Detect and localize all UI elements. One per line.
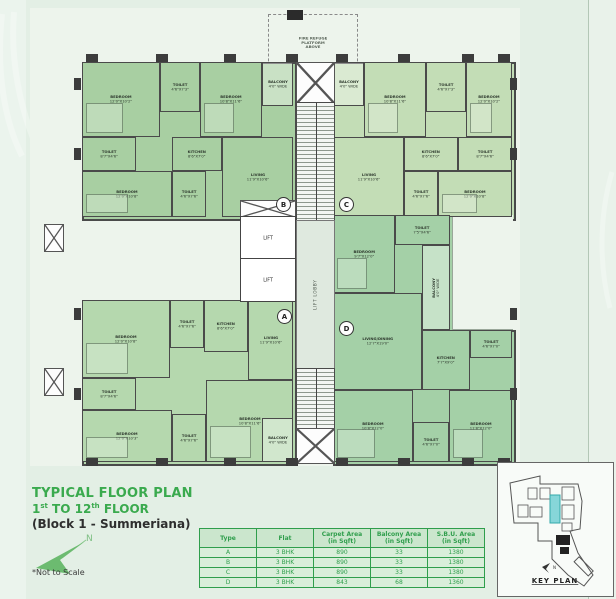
column bbox=[74, 308, 81, 320]
room-toilet: TOILET4'6"X7'3" bbox=[426, 62, 466, 112]
column bbox=[498, 54, 510, 62]
column bbox=[156, 54, 168, 62]
table-cell: A bbox=[200, 548, 257, 558]
page: FIRE REFUGE PLATFORM ABOVE BEDROOM12'0"X… bbox=[0, 0, 616, 599]
area-table-body: A3 BHK890331380B3 BHK890331380C3 BHK8903… bbox=[200, 548, 485, 588]
table-cell: 3 BHK bbox=[257, 568, 314, 578]
room-toilet: TOILET4'6"X7'6" bbox=[172, 171, 206, 217]
room-bedroom: BEDROOM10'8"X12'0" bbox=[333, 390, 413, 462]
column bbox=[510, 388, 517, 400]
key-north-arrow bbox=[542, 563, 550, 573]
table-cell: 3 BHK bbox=[257, 558, 314, 568]
plan-subtitle: 1st TO 12th FLOOR bbox=[32, 502, 193, 516]
room-toilet: TOILET7'5"X4'6" bbox=[395, 215, 450, 245]
table-cell: C bbox=[200, 568, 257, 578]
shaft-bottom bbox=[296, 428, 335, 464]
table-cell: 33 bbox=[371, 548, 428, 558]
room-toilet: TOILET4'6"X7'0" bbox=[413, 422, 449, 462]
lift-lobby: LIFT LOBBY bbox=[296, 220, 335, 370]
table-cell: 890 bbox=[314, 548, 371, 558]
key-dark-cluster bbox=[556, 535, 570, 554]
staircase-bottom bbox=[296, 368, 335, 430]
room-balcony: BALCONY4'0" WIDE bbox=[333, 62, 364, 106]
column bbox=[224, 458, 236, 466]
leaf-decoration bbox=[592, 170, 616, 310]
table-header-cell: Type bbox=[200, 529, 257, 548]
lift-lobby-label: LIFT LOBBY bbox=[313, 280, 318, 310]
table-cell: 1380 bbox=[428, 568, 485, 578]
room-toilet: TOILET8'7"X4'6" bbox=[458, 137, 512, 171]
table-row: C3 BHK890331380 bbox=[200, 568, 485, 578]
north-label: N bbox=[86, 534, 93, 544]
column bbox=[156, 458, 168, 466]
area-table-header: TypeFlatCarpet Area (in Sqft)Balcony Are… bbox=[200, 529, 485, 548]
edge-column-left-2 bbox=[44, 368, 64, 396]
title-block: TYPICAL FLOOR PLAN 1st TO 12th FLOOR (Bl… bbox=[32, 486, 193, 531]
room-toilet: TOILET4'6"X7'6" bbox=[404, 171, 438, 217]
room-bedroom: BEDROOM12'0"X10'2" bbox=[82, 62, 160, 137]
key-buildings bbox=[518, 487, 574, 531]
room-bedroom: BEDROOM12'0"X10'3" bbox=[82, 410, 172, 462]
plan-title: TYPICAL FLOOR PLAN bbox=[32, 486, 193, 501]
staircase-top bbox=[296, 102, 335, 222]
table-cell: 33 bbox=[371, 558, 428, 568]
table-cell: 1380 bbox=[428, 558, 485, 568]
table-cell: 3 BHK bbox=[257, 548, 314, 558]
column bbox=[510, 308, 517, 320]
column bbox=[86, 54, 98, 62]
room-toilet: TOILET4'6"X7'6" bbox=[170, 300, 204, 348]
room-toilet: TOILET4'6"X7'0" bbox=[470, 330, 512, 358]
column bbox=[398, 54, 410, 62]
room-bedroom: BEDROOM9'7"X12'0" bbox=[333, 215, 395, 293]
key-entry-bar bbox=[574, 557, 593, 576]
table-cell: 843 bbox=[314, 578, 371, 588]
column bbox=[336, 54, 348, 62]
room-toilet: TOILET4'6"X7'3" bbox=[160, 62, 200, 112]
flat-marker-d: D bbox=[339, 321, 354, 336]
table-header-cell: Flat bbox=[257, 529, 314, 548]
lift: LIFT bbox=[240, 258, 296, 302]
room-bedroom: BEDROOM12'0"X10'8" bbox=[82, 300, 170, 378]
key-plan: N KEY PLAN bbox=[497, 462, 614, 597]
column bbox=[286, 458, 298, 466]
room-bedroom: BEDROOM10'8"X11'6" bbox=[364, 62, 426, 137]
column bbox=[74, 148, 81, 160]
room-toilet: TOILET8'7"X4'6" bbox=[82, 378, 136, 410]
room-bedroom: BEDROOM12'0"X10'8" bbox=[82, 171, 172, 217]
flat-marker-b: B bbox=[276, 197, 291, 212]
not-to-scale-note: *Not to Scale bbox=[32, 568, 85, 577]
room-bedroom: BEDROOM10'8"X11'6" bbox=[200, 62, 262, 137]
column bbox=[398, 458, 410, 466]
column bbox=[510, 148, 517, 160]
fire-refuge-note: FIRE REFUGE PLATFORM ABOVE bbox=[284, 37, 341, 50]
room-bedroom: BEDROOM11'8"X12'0" bbox=[449, 390, 512, 462]
duct-box bbox=[287, 10, 303, 20]
room-toilet: TOILET8'7"X4'6" bbox=[82, 137, 136, 171]
floor-plan: FIRE REFUGE PLATFORM ABOVE BEDROOM12'0"X… bbox=[30, 8, 520, 466]
room-living-dining: LIVING/DINING12'7"X19'0" bbox=[333, 293, 422, 390]
column bbox=[286, 54, 298, 62]
table-cell: 68 bbox=[371, 578, 428, 588]
room-balcony: BALCONY4'0" WIDE bbox=[422, 245, 450, 330]
table-cell: 33 bbox=[371, 568, 428, 578]
table-cell: B bbox=[200, 558, 257, 568]
lift: LIFT bbox=[240, 216, 296, 260]
table-row: D3 BHK843681360 bbox=[200, 578, 485, 588]
room-balcony: BALCONY4'0" WIDE bbox=[262, 62, 293, 106]
table-header-cell: Carpet Area (in Sqft) bbox=[314, 529, 371, 548]
table-header-cell: Balcony Area (in Sqft) bbox=[371, 529, 428, 548]
table-cell: 890 bbox=[314, 558, 371, 568]
room-bedroom: BEDROOM12'0"X10'2" bbox=[466, 62, 512, 137]
column bbox=[74, 388, 81, 400]
room-kitchen: KITCHEN7'7"X9'0" bbox=[422, 330, 470, 390]
room-kitchen: KITCHEN8'6"X7'0" bbox=[404, 137, 458, 171]
room-bedroom: BEDROOM12'0"X10'8" bbox=[438, 171, 512, 217]
key-plan-label: KEY PLAN bbox=[532, 577, 579, 585]
table-cell: 3 BHK bbox=[257, 578, 314, 588]
column bbox=[86, 458, 98, 466]
flat-marker-a: A bbox=[277, 309, 292, 324]
table-cell: 1380 bbox=[428, 548, 485, 558]
open-void bbox=[452, 215, 513, 330]
column bbox=[336, 458, 348, 466]
shaft-top bbox=[296, 62, 335, 104]
table-cell: 890 bbox=[314, 568, 371, 578]
room-balcony: BALCONY4'0" WIDE bbox=[262, 418, 293, 462]
column bbox=[462, 54, 474, 62]
column bbox=[224, 54, 236, 62]
flat-marker-c: C bbox=[339, 197, 354, 212]
table-cell: D bbox=[200, 578, 257, 588]
column bbox=[462, 458, 474, 466]
room-kitchen: KITCHEN8'6"X7'0" bbox=[172, 137, 222, 171]
highlighted-block bbox=[550, 495, 560, 523]
column bbox=[74, 78, 81, 90]
block-name: (Block 1 - Summeriana) bbox=[32, 517, 193, 531]
area-table: TypeFlatCarpet Area (in Sqft)Balcony Are… bbox=[199, 528, 485, 588]
table-row: A3 BHK890331380 bbox=[200, 548, 485, 558]
table-header-cell: S.B.U. Area (in Sqft) bbox=[428, 529, 485, 548]
edge-column-left-1 bbox=[44, 224, 64, 252]
room-kitchen: KITCHEN8'6"X7'0" bbox=[204, 300, 248, 352]
column bbox=[510, 78, 517, 90]
table-row: B3 BHK890331380 bbox=[200, 558, 485, 568]
key-north-label: N bbox=[553, 565, 556, 570]
room-toilet: TOILET4'6"X7'6" bbox=[172, 414, 206, 462]
table-cell: 1360 bbox=[428, 578, 485, 588]
site-boundary bbox=[510, 476, 593, 586]
